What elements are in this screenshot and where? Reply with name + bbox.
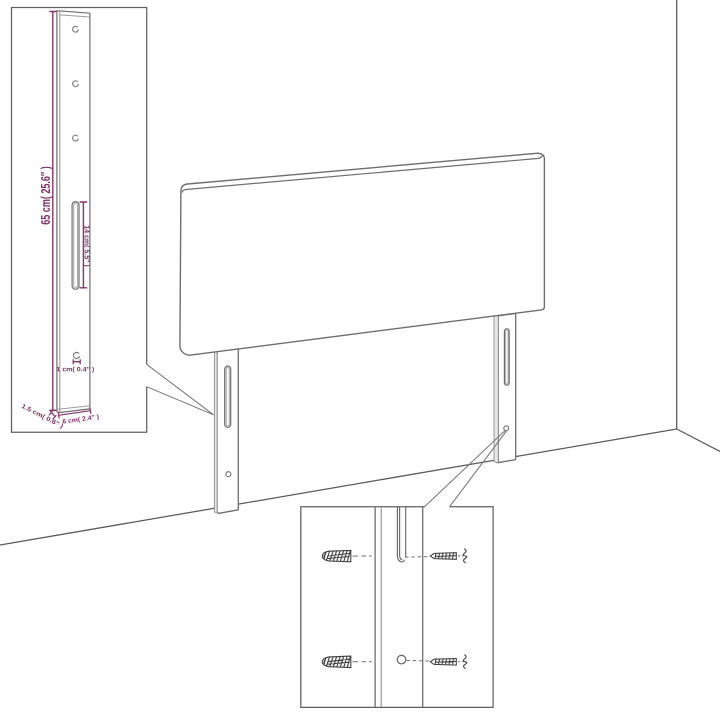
svg-text:1 cm( 0.4″ ): 1 cm( 0.4″ ) xyxy=(56,366,94,373)
svg-text:14 cm( 5.5″ ): 14 cm( 5.5″ ) xyxy=(83,225,92,267)
svg-text:65 cm( 25.6″ ): 65 cm( 25.6″ ) xyxy=(39,166,53,225)
